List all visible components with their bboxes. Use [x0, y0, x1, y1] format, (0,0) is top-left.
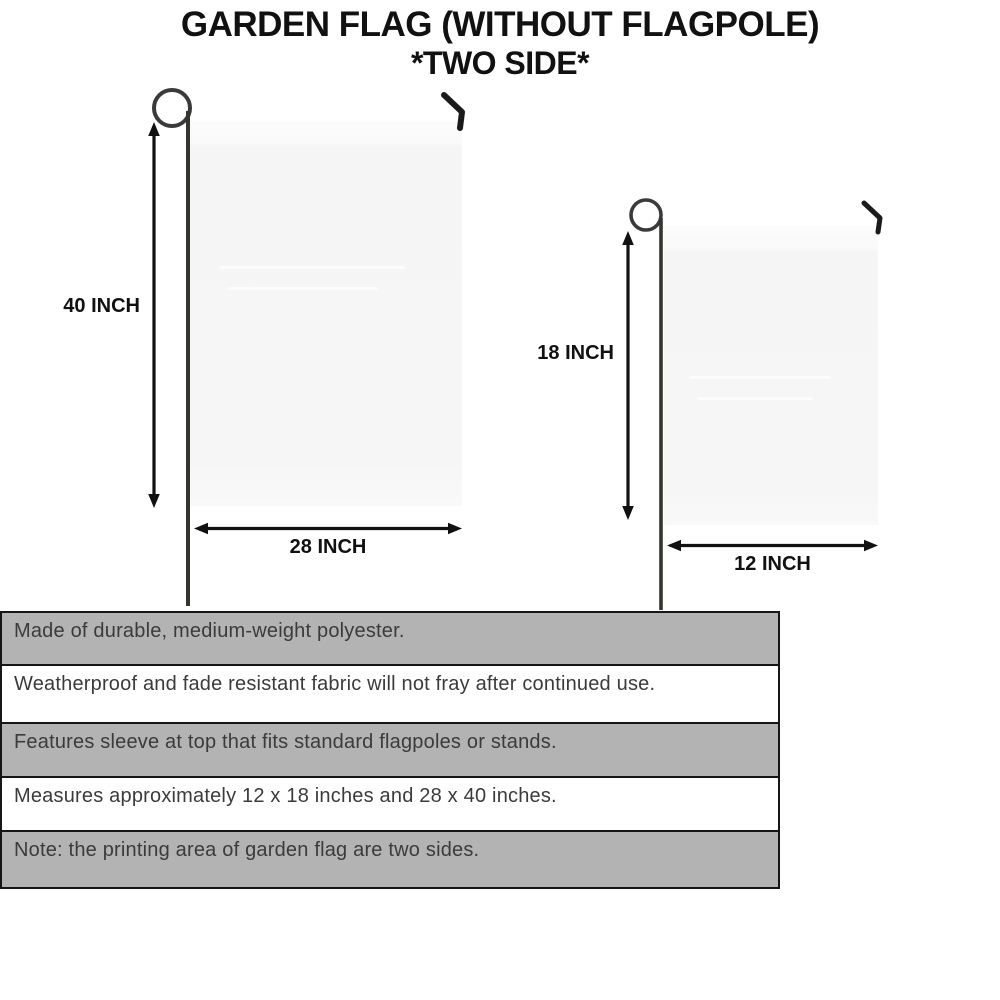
feature-text: Note: the printing area of garden flag a… — [14, 839, 479, 861]
height-arrow-large — [146, 122, 162, 508]
title-line-1: GARDEN FLAG (WITHOUT FLAGPOLE) — [0, 6, 1000, 45]
height-label-large: 40 INCH — [28, 295, 140, 318]
width-label-small: 12 INCH — [667, 553, 878, 576]
feature-row: Measures approximately 12 x 18 inches an… — [0, 776, 780, 832]
feature-text: Measures approximately 12 x 18 inches an… — [14, 785, 557, 807]
width-arrow-large — [194, 520, 462, 537]
title-line-2: *TWO SIDE* — [0, 46, 1000, 81]
page-title: GARDEN FLAG (WITHOUT FLAGPOLE) *TWO SIDE… — [0, 6, 1000, 81]
feature-row: Weatherproof and fade resistant fabric w… — [0, 664, 780, 724]
width-arrow-small — [667, 537, 878, 554]
garden-flag-infographic: GARDEN FLAG (WITHOUT FLAGPOLE) *TWO SIDE… — [0, 0, 1000, 1000]
feature-text: Made of durable, medium-weight polyester… — [14, 620, 405, 642]
feature-text: Features sleeve at top that fits standar… — [14, 731, 557, 753]
feature-row: Note: the printing area of garden flag a… — [0, 830, 780, 889]
height-arrow-small — [620, 231, 636, 520]
height-label-small: 18 INCH — [502, 342, 614, 365]
feature-row: Made of durable, medium-weight polyester… — [0, 611, 780, 666]
features-table: Made of durable, medium-weight polyester… — [0, 611, 780, 889]
feature-row: Features sleeve at top that fits standar… — [0, 722, 780, 778]
feature-text: Weatherproof and fade resistant fabric w… — [14, 673, 655, 695]
width-label-large: 28 INCH — [194, 536, 462, 559]
